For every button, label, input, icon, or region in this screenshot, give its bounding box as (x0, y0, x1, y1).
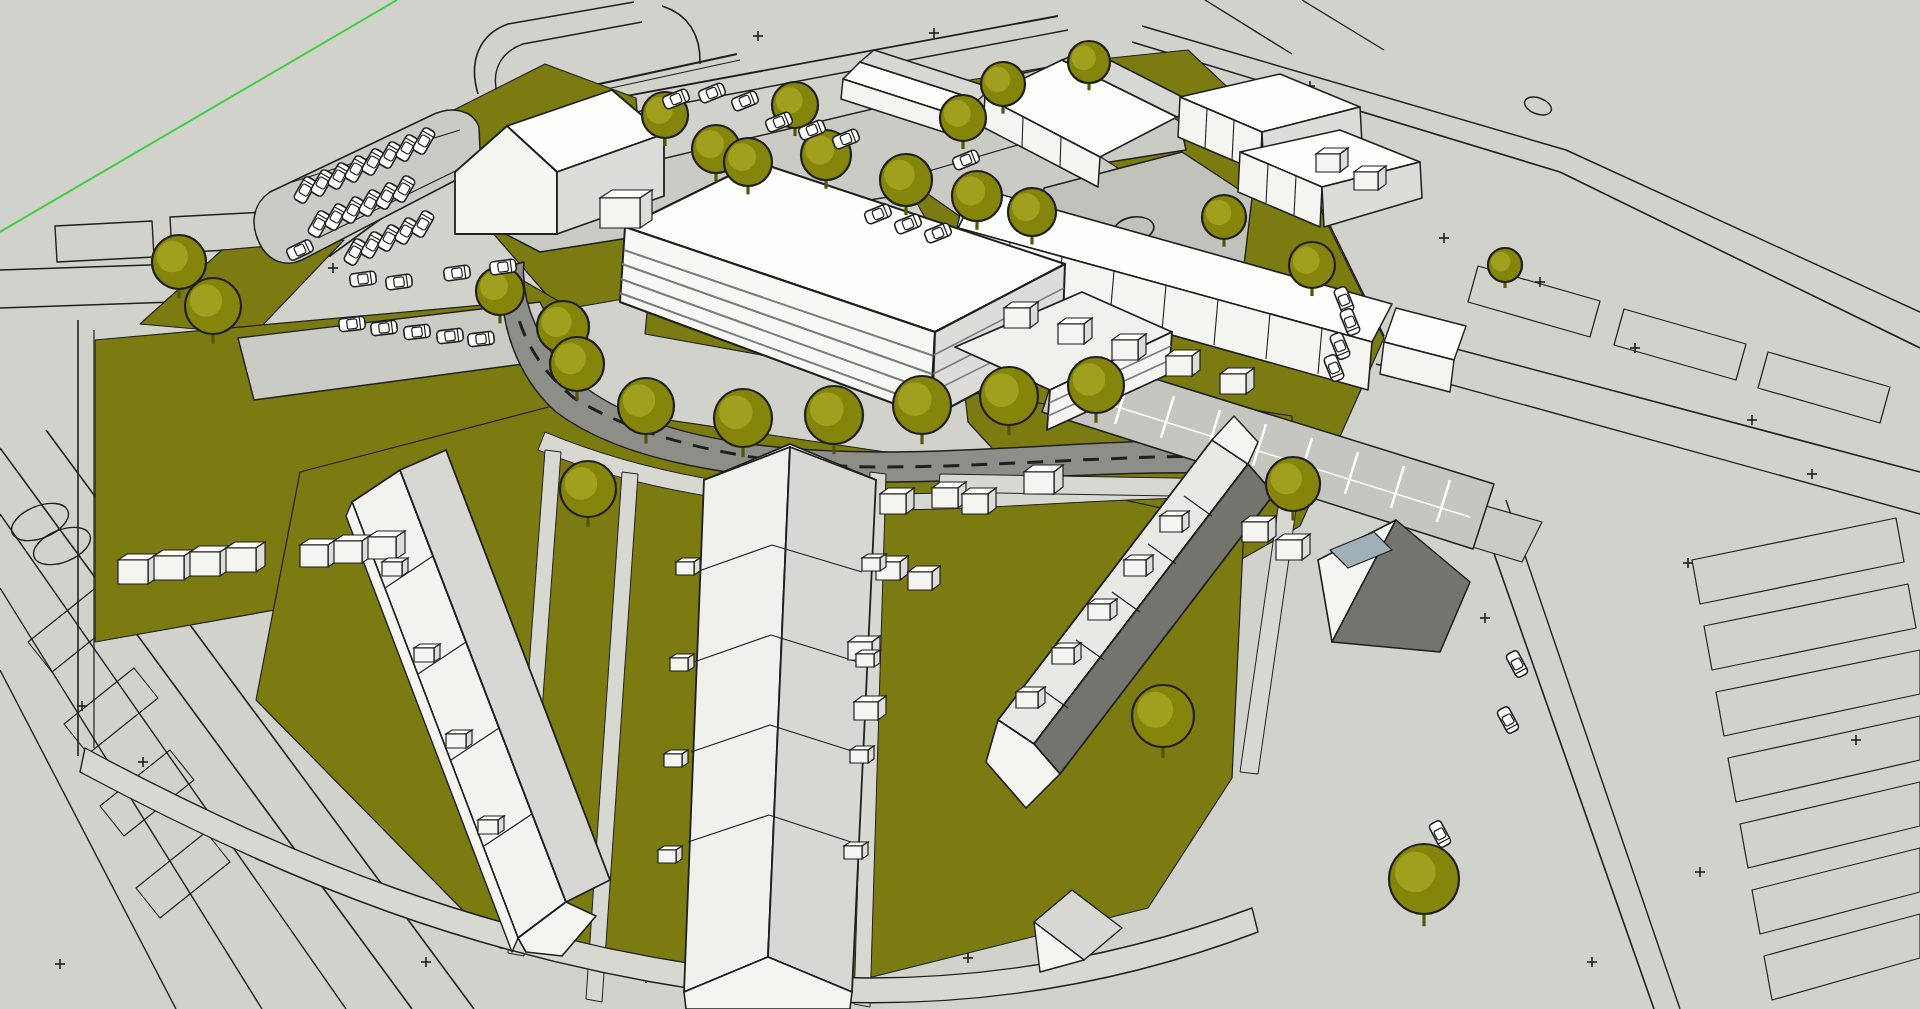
shed-box (854, 696, 886, 720)
shed-box (1088, 599, 1117, 620)
shed-box (1016, 687, 1045, 708)
shed-box (664, 750, 688, 767)
parked-car (385, 274, 413, 290)
parked-car (443, 265, 471, 281)
shed-box (478, 816, 504, 834)
shed-box (844, 842, 868, 859)
shed-box (600, 190, 652, 228)
shed-box (1160, 511, 1189, 532)
tree-canopy-highlight (1271, 463, 1302, 494)
shed-box (1166, 350, 1200, 376)
tree-canopy-highlight (555, 343, 586, 374)
tree-canopy-highlight (1206, 200, 1232, 226)
shed-box (1220, 368, 1254, 394)
shed-box (676, 558, 700, 575)
tree-canopy-highlight (810, 392, 844, 426)
parked-car (403, 324, 430, 340)
parked-car (349, 271, 377, 287)
shed-box (908, 566, 940, 590)
tree-canopy-highlight (985, 67, 1011, 93)
tree-canopy-highlight (956, 177, 985, 206)
shed-box (446, 730, 472, 748)
parked-car (436, 328, 463, 344)
tree-canopy-highlight (719, 395, 753, 429)
tree-canopy-highlight (480, 272, 508, 300)
tree-canopy-highlight (623, 384, 655, 416)
parked-car (489, 259, 517, 275)
shed-box (1124, 555, 1153, 576)
shed-box (1058, 318, 1092, 344)
shed-box (118, 554, 157, 584)
shed-box (850, 746, 874, 763)
shed-box (190, 546, 229, 576)
parked-car (370, 320, 397, 336)
tree-canopy-highlight (985, 373, 1019, 407)
tree-canopy-highlight (1072, 46, 1096, 70)
shed-box (962, 488, 996, 514)
shed-box (414, 644, 440, 662)
tree-canopy-highlight (157, 241, 188, 272)
shed-box (670, 654, 694, 671)
tree-canopy-highlight (1012, 193, 1040, 221)
parked-car (467, 331, 494, 347)
tree-canopy-highlight (776, 87, 803, 114)
tree-canopy-highlight (728, 143, 756, 171)
shed-box (368, 531, 405, 559)
shed-box (862, 554, 886, 571)
shed-box (1052, 643, 1081, 664)
tree-canopy-highlight (898, 382, 932, 416)
shed-box (658, 846, 682, 863)
tree-canopy-highlight (1491, 252, 1511, 272)
shed-box (1004, 302, 1038, 328)
shed-box (1242, 516, 1276, 542)
tree-canopy-highlight (1293, 247, 1320, 274)
tree-canopy-highlight (805, 136, 834, 165)
shed-box (1316, 148, 1348, 172)
shed-box (154, 550, 193, 580)
shed-box (300, 539, 337, 567)
tree-canopy-highlight (884, 160, 914, 190)
shed-box (226, 542, 265, 572)
shed-box (1276, 534, 1310, 560)
tree-canopy-highlight (565, 467, 597, 499)
tree-canopy-highlight (1395, 852, 1436, 893)
tree-canopy-highlight (944, 100, 971, 127)
tree-canopy-highlight (541, 307, 571, 337)
shed-box (1112, 334, 1146, 360)
tree-canopy-highlight (696, 130, 724, 158)
shed-box (1354, 166, 1386, 190)
shed-box (932, 482, 966, 508)
tree-canopy-highlight (190, 284, 222, 316)
shed-box (880, 488, 914, 514)
shed-box (1024, 465, 1063, 494)
shed-box (382, 558, 408, 576)
shed-box (856, 650, 880, 667)
shed-box (334, 535, 371, 563)
tree-canopy-highlight (1137, 692, 1173, 728)
tree-canopy-highlight (1073, 363, 1105, 395)
model-viewport[interactable] (0, 0, 1920, 1009)
site-model-canvas (0, 0, 1920, 1009)
parked-car (338, 316, 365, 332)
